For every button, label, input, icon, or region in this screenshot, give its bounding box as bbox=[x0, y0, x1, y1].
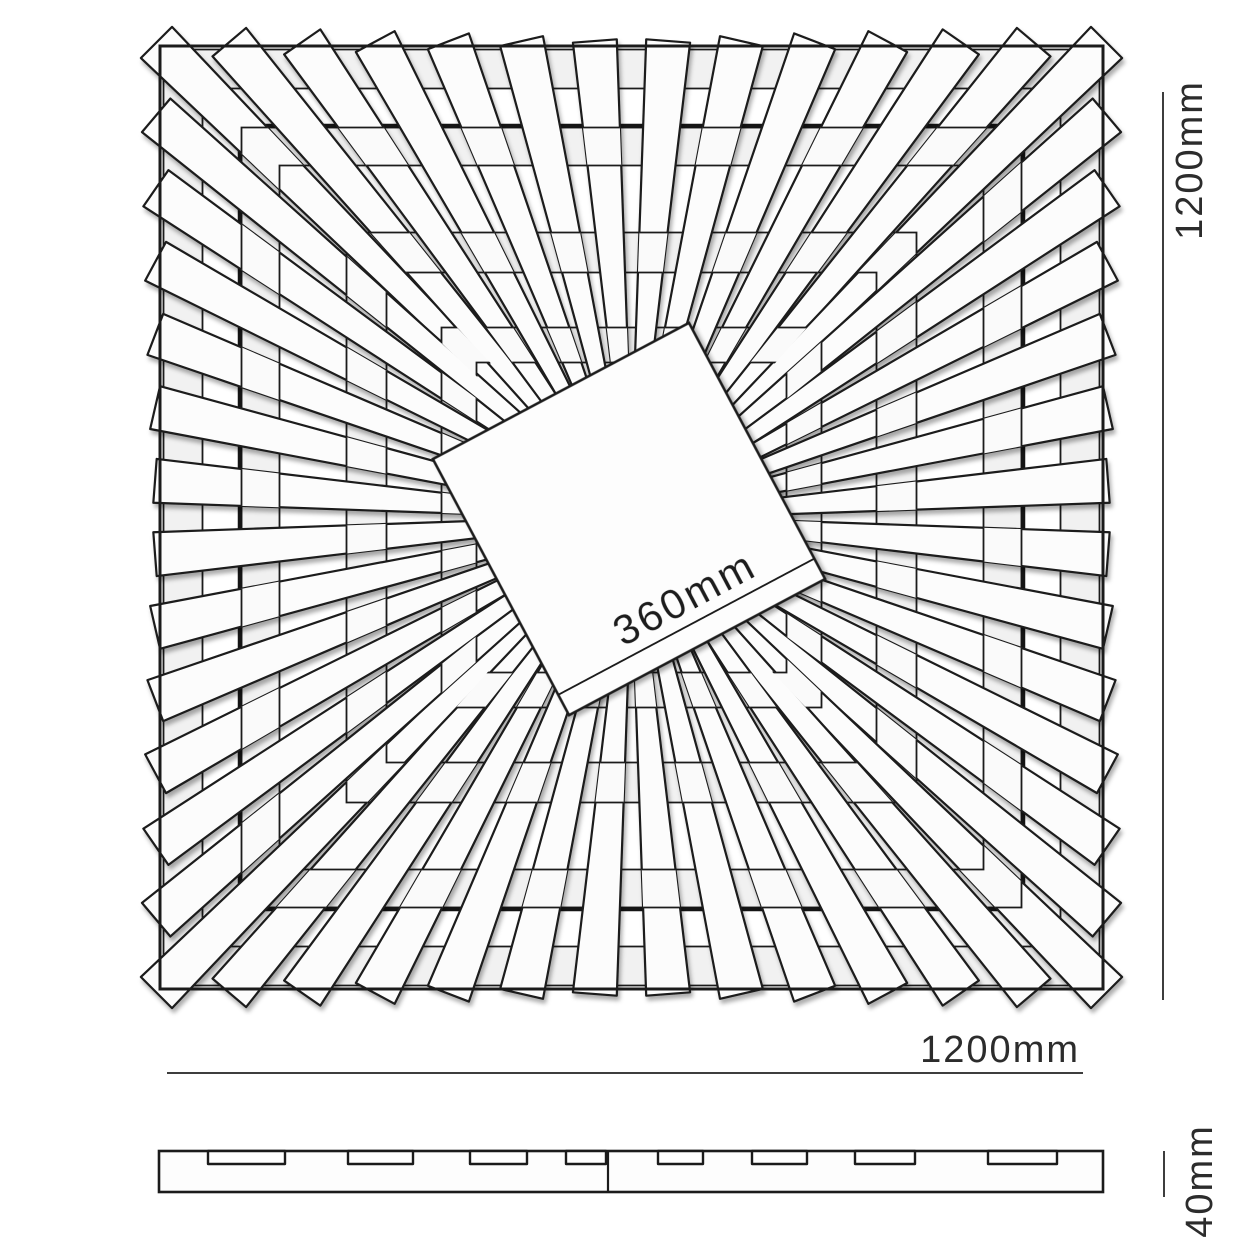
profile-notch bbox=[658, 1151, 703, 1164]
profile-notch bbox=[208, 1151, 285, 1164]
panel-side-view bbox=[159, 1151, 1103, 1192]
profile-notch bbox=[855, 1151, 915, 1164]
technical-drawing: 360mm 1200mm 1200mm 40mm bbox=[0, 0, 1250, 1250]
profile-notch bbox=[470, 1151, 527, 1164]
profile-notch bbox=[566, 1151, 606, 1164]
width-dimension-label: 1200mm bbox=[920, 1029, 1080, 1071]
profile-notch bbox=[988, 1151, 1057, 1164]
profile-notch bbox=[752, 1151, 807, 1164]
height-dimension-label: 1200mm bbox=[1169, 80, 1211, 240]
thickness-dimension-label: 40mm bbox=[1179, 1124, 1221, 1238]
profile-body bbox=[159, 1151, 1103, 1192]
profile-notch bbox=[348, 1151, 413, 1164]
panel-dimension-drawing: 360mm 1200mm 1200mm 40mm bbox=[0, 0, 1250, 1250]
